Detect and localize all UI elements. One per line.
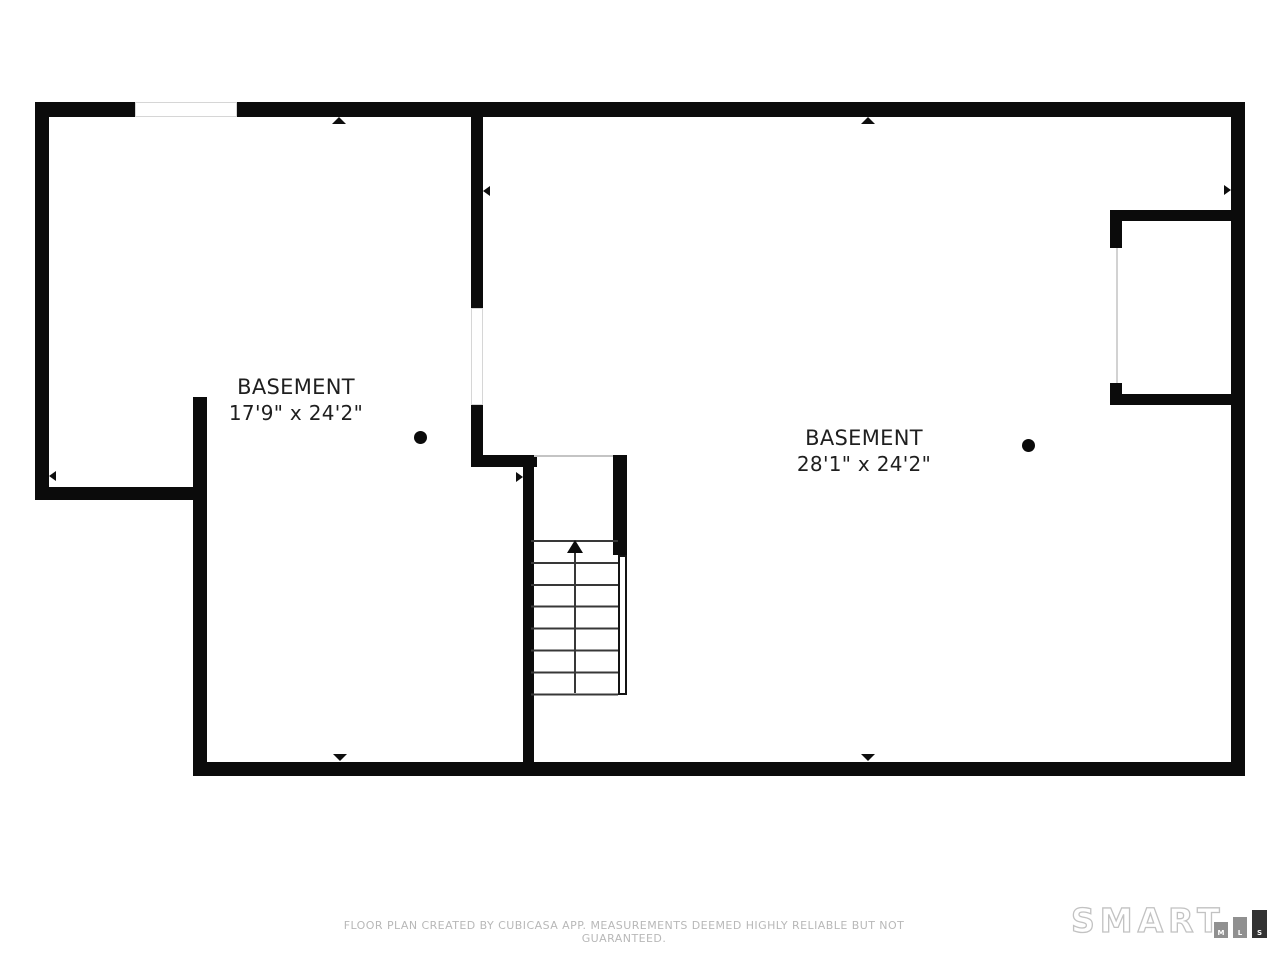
room-label-basement-left: BASEMENT 17'9" x 24'2" [146, 374, 446, 426]
room-name: BASEMENT [714, 425, 1014, 451]
staircase-center-line [574, 552, 576, 693]
arrow-down-icon [861, 754, 875, 761]
room-label-basement-right: BASEMENT 28'1" x 24'2" [714, 425, 1014, 477]
footer-disclaimer: FLOOR PLAN CREATED BY CUBICASA APP. MEAS… [324, 919, 924, 945]
stair-opening-line [534, 455, 613, 457]
wall-closet-stub-top [1110, 210, 1122, 248]
window-top-wall [135, 102, 237, 117]
smartmls-logo: SMART [1071, 903, 1225, 939]
wall-closet-stub-bottom [1110, 383, 1122, 405]
arrow-right-icon [1224, 185, 1231, 195]
logo-bar-letter: S [1257, 928, 1262, 938]
stairs-up-arrow-icon [567, 540, 583, 553]
arrow-up-icon [861, 117, 875, 124]
room-name: BASEMENT [146, 374, 446, 400]
arrow-down-icon [333, 754, 347, 761]
smartmls-logo-bar-s: S [1252, 910, 1267, 938]
wall-closet-top [1110, 210, 1231, 221]
wall-closet-bottom [1110, 394, 1231, 405]
wall-right-outer [1231, 102, 1245, 776]
opening-divider-wall [471, 308, 483, 405]
arrow-right-icon [516, 472, 523, 482]
camera-point-dot [1022, 439, 1035, 452]
wall-left-outer [35, 102, 49, 500]
wall-top-main [237, 102, 1245, 117]
wall-bottom [193, 762, 1245, 776]
arrow-up-icon [332, 117, 346, 124]
closet-opening-line [1116, 248, 1118, 383]
wall-left-step [35, 487, 207, 500]
wall-divider-upper [471, 102, 483, 308]
stair-right-thin-wall [618, 555, 627, 695]
logo-bar-letter: L [1238, 928, 1242, 938]
smartmls-logo-bar-l: L [1233, 917, 1247, 938]
room-dimensions: 17'9" x 24'2" [146, 400, 446, 426]
wall-lower-left [193, 397, 207, 776]
room-dimensions: 28'1" x 24'2" [714, 451, 1014, 477]
wall-top-left-segment [35, 102, 135, 117]
camera-point-dot [414, 431, 427, 444]
floor-plan-canvas: BASEMENT 17'9" x 24'2" BASEMENT 28'1" x … [0, 0, 1280, 960]
logo-bar-letter: M [1218, 928, 1225, 938]
smartmls-logo-bar-m: M [1214, 922, 1228, 938]
arrow-left-icon [483, 186, 490, 196]
arrow-left-icon [49, 471, 56, 481]
